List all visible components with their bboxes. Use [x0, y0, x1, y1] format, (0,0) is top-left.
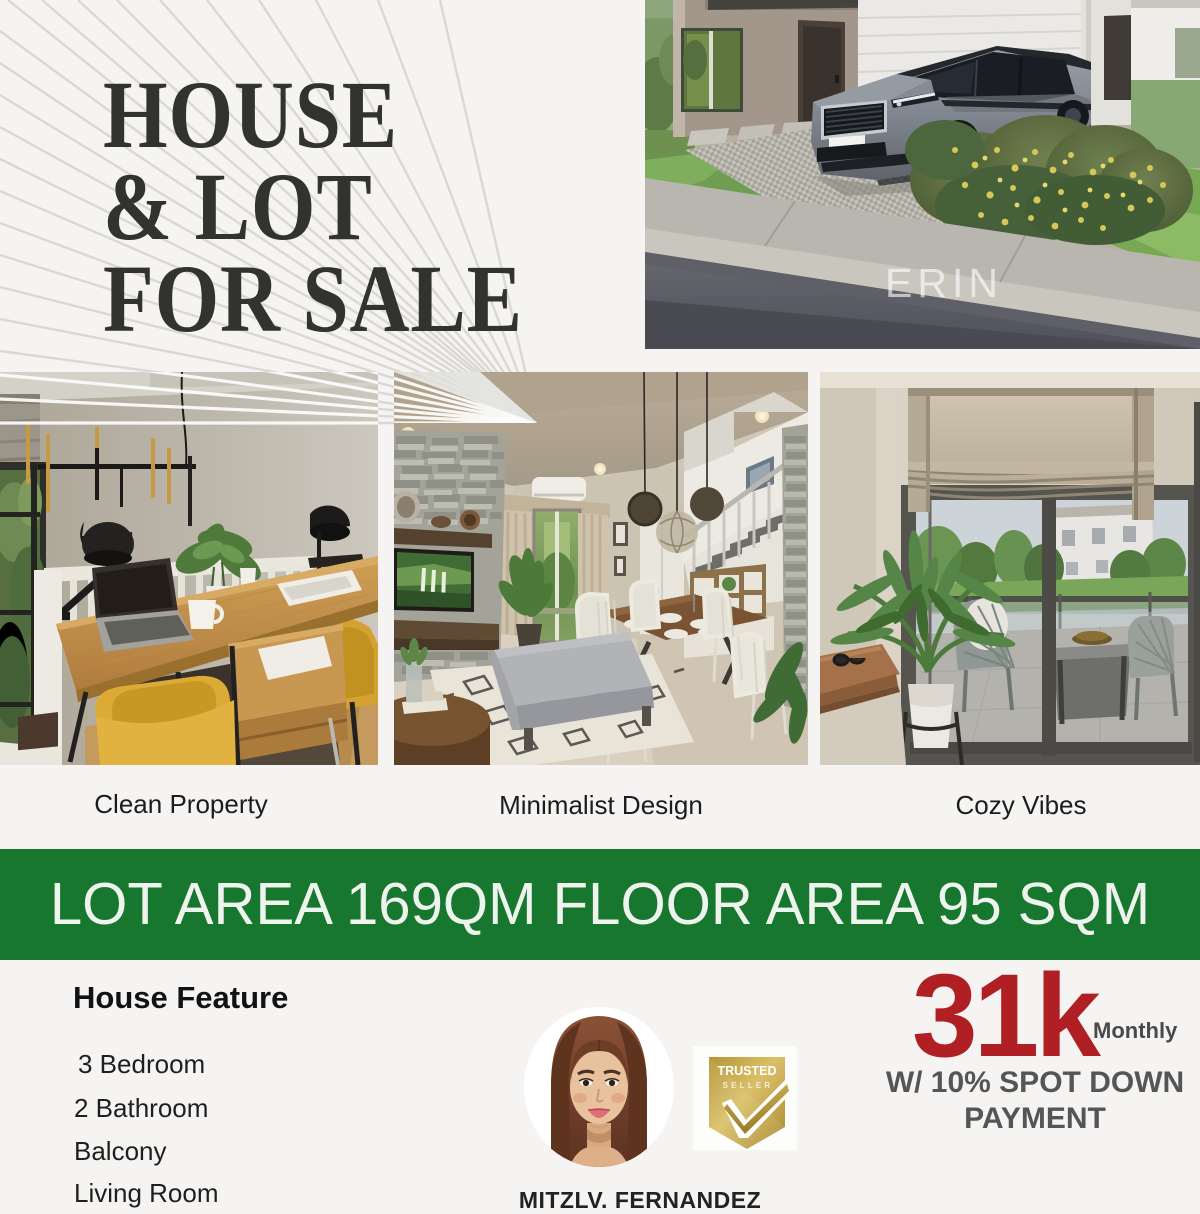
svg-text:ERIN: ERIN — [885, 260, 1003, 306]
svg-text:SELLER: SELLER — [723, 1081, 774, 1090]
svg-text:TRUSTED: TRUSTED — [717, 1064, 776, 1078]
